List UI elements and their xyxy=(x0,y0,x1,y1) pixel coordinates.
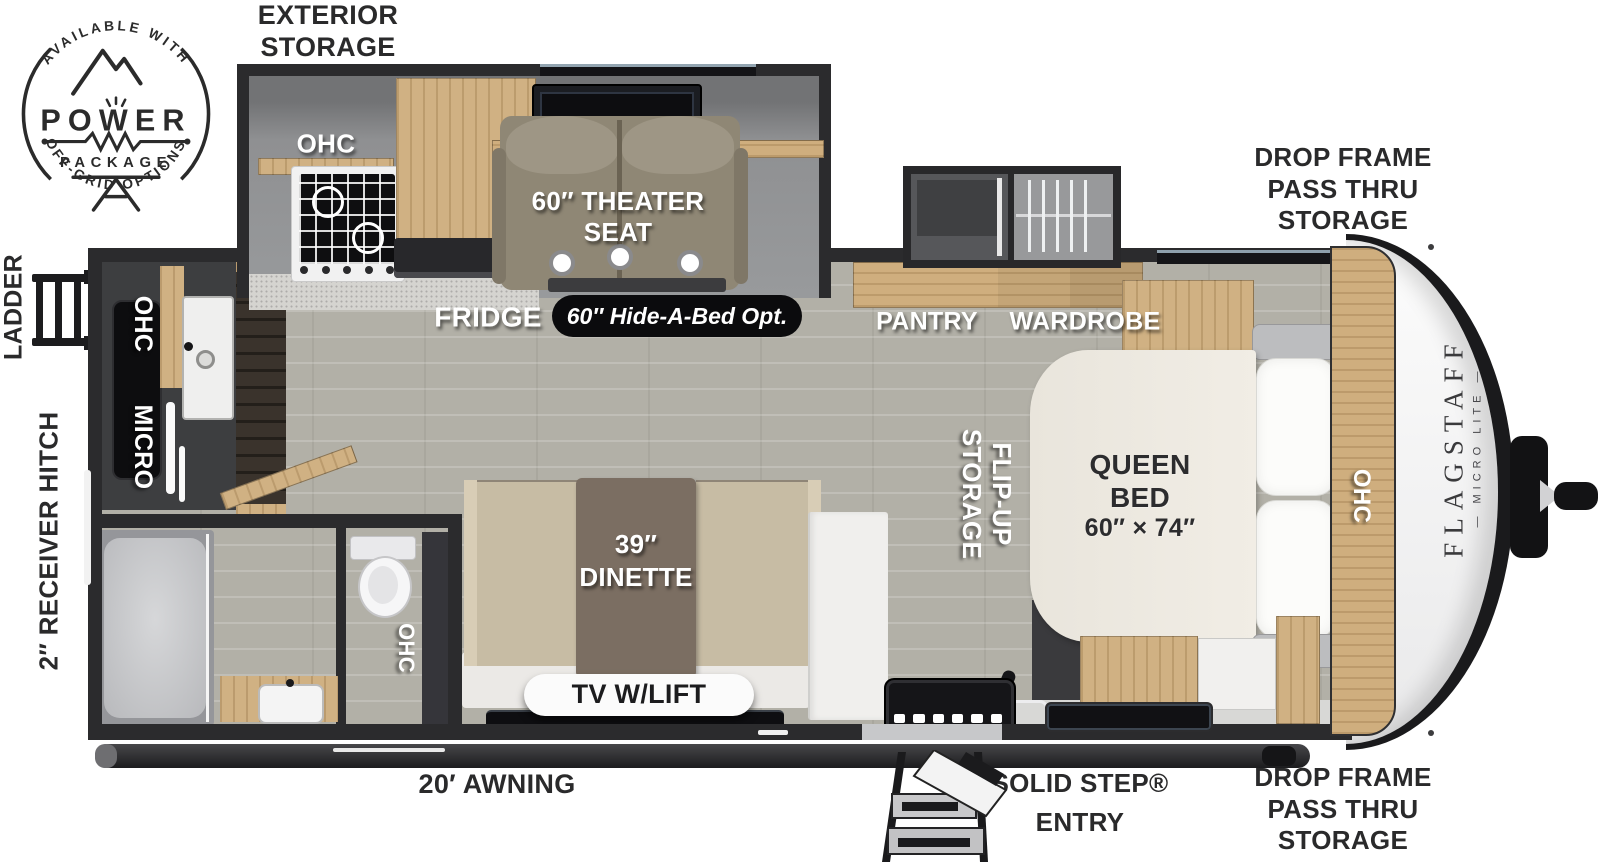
theater-base xyxy=(548,278,726,292)
stove-grate xyxy=(299,174,395,264)
awning-label: 20′ AWNING xyxy=(419,769,576,801)
hanging-clothes-icon xyxy=(1028,180,1094,252)
theater-armrest xyxy=(492,148,506,284)
bath-ohc-label: OHC xyxy=(393,623,419,673)
vanity-sink xyxy=(258,684,324,724)
dinette-bench xyxy=(696,480,821,666)
ladder-icon xyxy=(28,268,92,354)
awning-roller xyxy=(95,744,1310,768)
badge-arc-top: AVAILABLE WITH xyxy=(39,18,194,67)
wardrobe-label: WARDROBE xyxy=(1009,307,1160,337)
kitchen-ohc-label: OHC xyxy=(127,296,157,352)
cap-screw-icon xyxy=(1428,730,1434,736)
power-package-badge-icon: AVAILABLE WITH OFF-GRID OPTIONS POWER PA… xyxy=(14,12,218,216)
toilet-seat xyxy=(368,566,398,604)
slide-ohc-label: OHC xyxy=(297,129,356,160)
badge-name: POWER xyxy=(40,103,191,137)
awning-end-cap xyxy=(95,744,117,768)
drop-frame-storage-top-label: DROP FRAMEPASS THRUSTORAGE xyxy=(1243,142,1443,237)
hide-a-bed-pill: 60″ Hide-A-Bed Opt. xyxy=(552,295,802,337)
burner-icon xyxy=(312,186,344,218)
half-wall-panel xyxy=(808,512,888,720)
top-window xyxy=(1157,250,1353,264)
flip-up-storage-label: FLIP-UPSTORAGE xyxy=(956,429,1016,559)
receiver-hitch-label: 2″ RECEIVER HITCH xyxy=(34,412,65,671)
bathroom-wall xyxy=(448,514,462,738)
fridge-label: FRIDGE xyxy=(434,300,542,333)
kitchen-cabinet xyxy=(160,266,184,388)
awning-highlight xyxy=(333,748,445,752)
bed-side-wardrobe xyxy=(1276,616,1320,724)
shower-glass xyxy=(206,534,209,722)
bathroom-wall xyxy=(88,514,462,528)
svg-text:AVAILABLE WITH: AVAILABLE WITH xyxy=(39,18,194,67)
bath-cabinet xyxy=(422,532,448,736)
theater-armrest xyxy=(734,148,748,284)
cupholder-icon xyxy=(549,250,575,276)
closet-back xyxy=(917,180,1002,236)
bottom-window xyxy=(1045,702,1213,732)
tv-lift-label: TV W/LIFT xyxy=(572,679,707,711)
queen-bed-label: QUEEN BED 60″ × 74″ xyxy=(1050,448,1230,544)
cap-screw-icon xyxy=(1428,244,1434,250)
shower-pan xyxy=(104,538,206,718)
stove-knobs xyxy=(300,266,394,276)
hitch-tongue xyxy=(1554,482,1598,510)
bottom-wall-window xyxy=(758,730,788,735)
tv-lift-pill: TV W/LIFT xyxy=(524,674,754,716)
closet-base-cabinet xyxy=(853,262,1143,308)
pantry-cabinet-cap xyxy=(236,504,286,514)
closet-shelf-edge xyxy=(997,178,1002,256)
slideout-window xyxy=(540,64,756,76)
entry-door-threshold xyxy=(862,724,1002,740)
mountain-icon xyxy=(73,51,140,94)
towel-bar xyxy=(166,402,175,494)
drop-frame-storage-bottom-label: DROP FRAMEPASS THRUSTORAGE xyxy=(1243,762,1443,857)
nightstand-top xyxy=(1252,324,1340,360)
badge-package: PACKAGE xyxy=(60,155,172,171)
vanity-faucet-icon xyxy=(286,679,294,687)
dinette-label: 39″DINETTE xyxy=(576,528,696,593)
theater-headrest xyxy=(622,116,734,174)
theater-headrest xyxy=(506,116,618,174)
cupholder-icon xyxy=(677,250,703,276)
floorplan: AVAILABLE WITH OFF-GRID OPTIONS POWER PA… xyxy=(0,0,1600,868)
rear-window xyxy=(84,470,91,585)
griddle-vents xyxy=(894,714,1002,723)
brand-model: — MICRO LITE — xyxy=(1472,336,1484,557)
faucet-icon xyxy=(184,342,193,351)
awning-knob xyxy=(1262,746,1296,766)
exterior-storage-label: EXTERIORSTORAGE xyxy=(230,0,426,64)
ladder-label: LADDER xyxy=(0,254,29,360)
brand-name: FLAGSTAFF xyxy=(1439,336,1470,557)
entry-steps-icon xyxy=(846,750,1016,866)
brand-logo: FLAGSTAFF — MICRO LITE — xyxy=(1439,336,1484,557)
towel-bar xyxy=(179,446,185,502)
bed-foot-cabinet xyxy=(1198,638,1276,710)
dinette-bench xyxy=(464,480,589,666)
top-wall xyxy=(88,248,237,262)
pillow xyxy=(1256,358,1336,496)
kitchen-micro-label: MICRO xyxy=(127,405,157,490)
theater-seat-label: 60″ THEATERSEAT xyxy=(520,186,716,248)
bed-ohc-label: OHC xyxy=(1347,469,1375,523)
burner-icon xyxy=(352,222,384,254)
sink-drain-icon xyxy=(196,350,215,369)
hide-a-bed-label: 60″ Hide-A-Bed Opt. xyxy=(567,303,788,330)
pantry-label: PANTRY xyxy=(876,307,978,337)
